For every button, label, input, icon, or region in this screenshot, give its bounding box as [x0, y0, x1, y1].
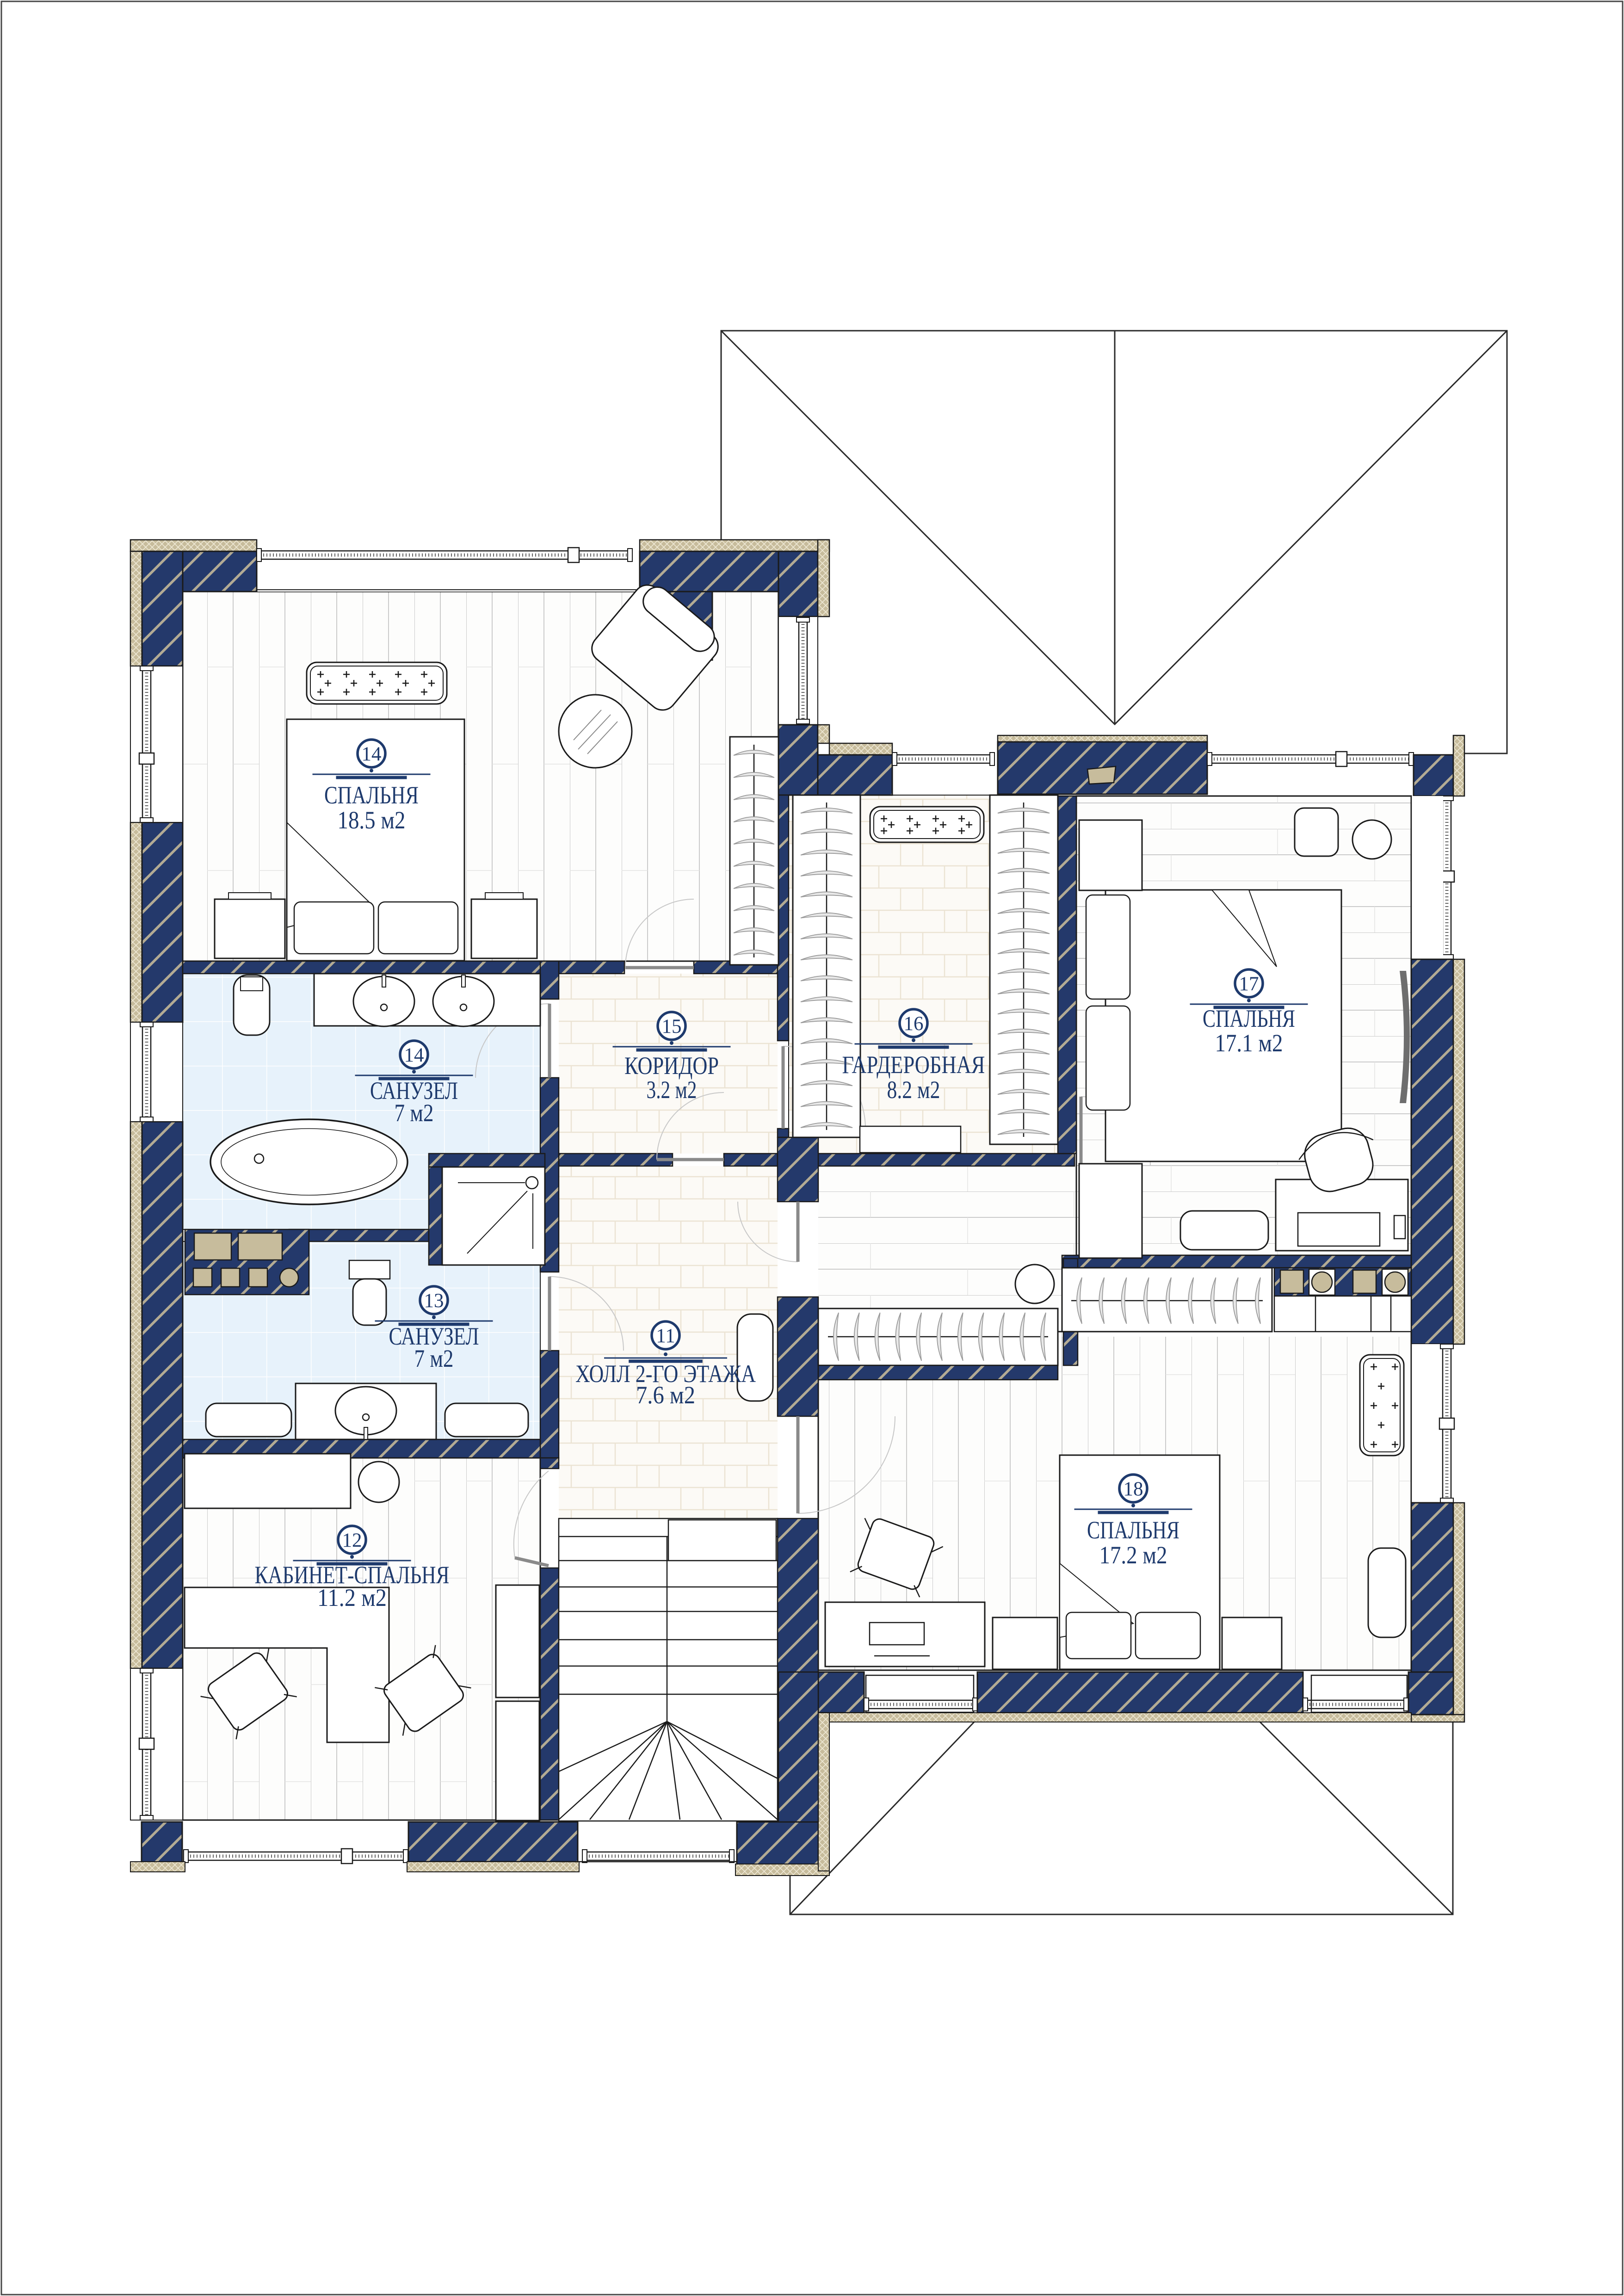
svg-text:14: 14 [404, 1044, 424, 1066]
svg-text:18: 18 [1124, 1478, 1143, 1500]
svg-text:11.2 м2: 11.2 м2 [317, 1584, 387, 1611]
svg-text:СПАЛЬНЯ: СПАЛЬНЯ [1203, 1005, 1295, 1032]
svg-text:12: 12 [342, 1530, 362, 1551]
svg-text:13: 13 [424, 1290, 444, 1312]
svg-text:11: 11 [656, 1325, 675, 1347]
svg-text:17.1 м2: 17.1 м2 [1215, 1029, 1283, 1057]
svg-text:15: 15 [662, 1016, 682, 1037]
svg-text:8.2 м2: 8.2 м2 [887, 1076, 940, 1104]
svg-text:КОРИДОР: КОРИДОР [624, 1052, 719, 1080]
svg-text:СПАЛЬНЯ: СПАЛЬНЯ [1087, 1516, 1179, 1544]
svg-text:16: 16 [904, 1013, 924, 1035]
svg-text:3.2 м2: 3.2 м2 [647, 1076, 697, 1104]
svg-text:7 м2: 7 м2 [395, 1099, 434, 1127]
svg-text:7 м2: 7 м2 [414, 1345, 454, 1372]
svg-text:14: 14 [362, 743, 382, 765]
svg-text:СПАЛЬНЯ: СПАЛЬНЯ [324, 781, 419, 809]
svg-text:7.6 м2: 7.6 м2 [636, 1381, 695, 1409]
svg-text:ГАРДЕРОБНАЯ: ГАРДЕРОБНАЯ [842, 1051, 985, 1079]
svg-text:18.5 м2: 18.5 м2 [338, 806, 406, 834]
svg-text:17: 17 [1239, 973, 1259, 995]
svg-text:17.2 м2: 17.2 м2 [1099, 1541, 1167, 1569]
